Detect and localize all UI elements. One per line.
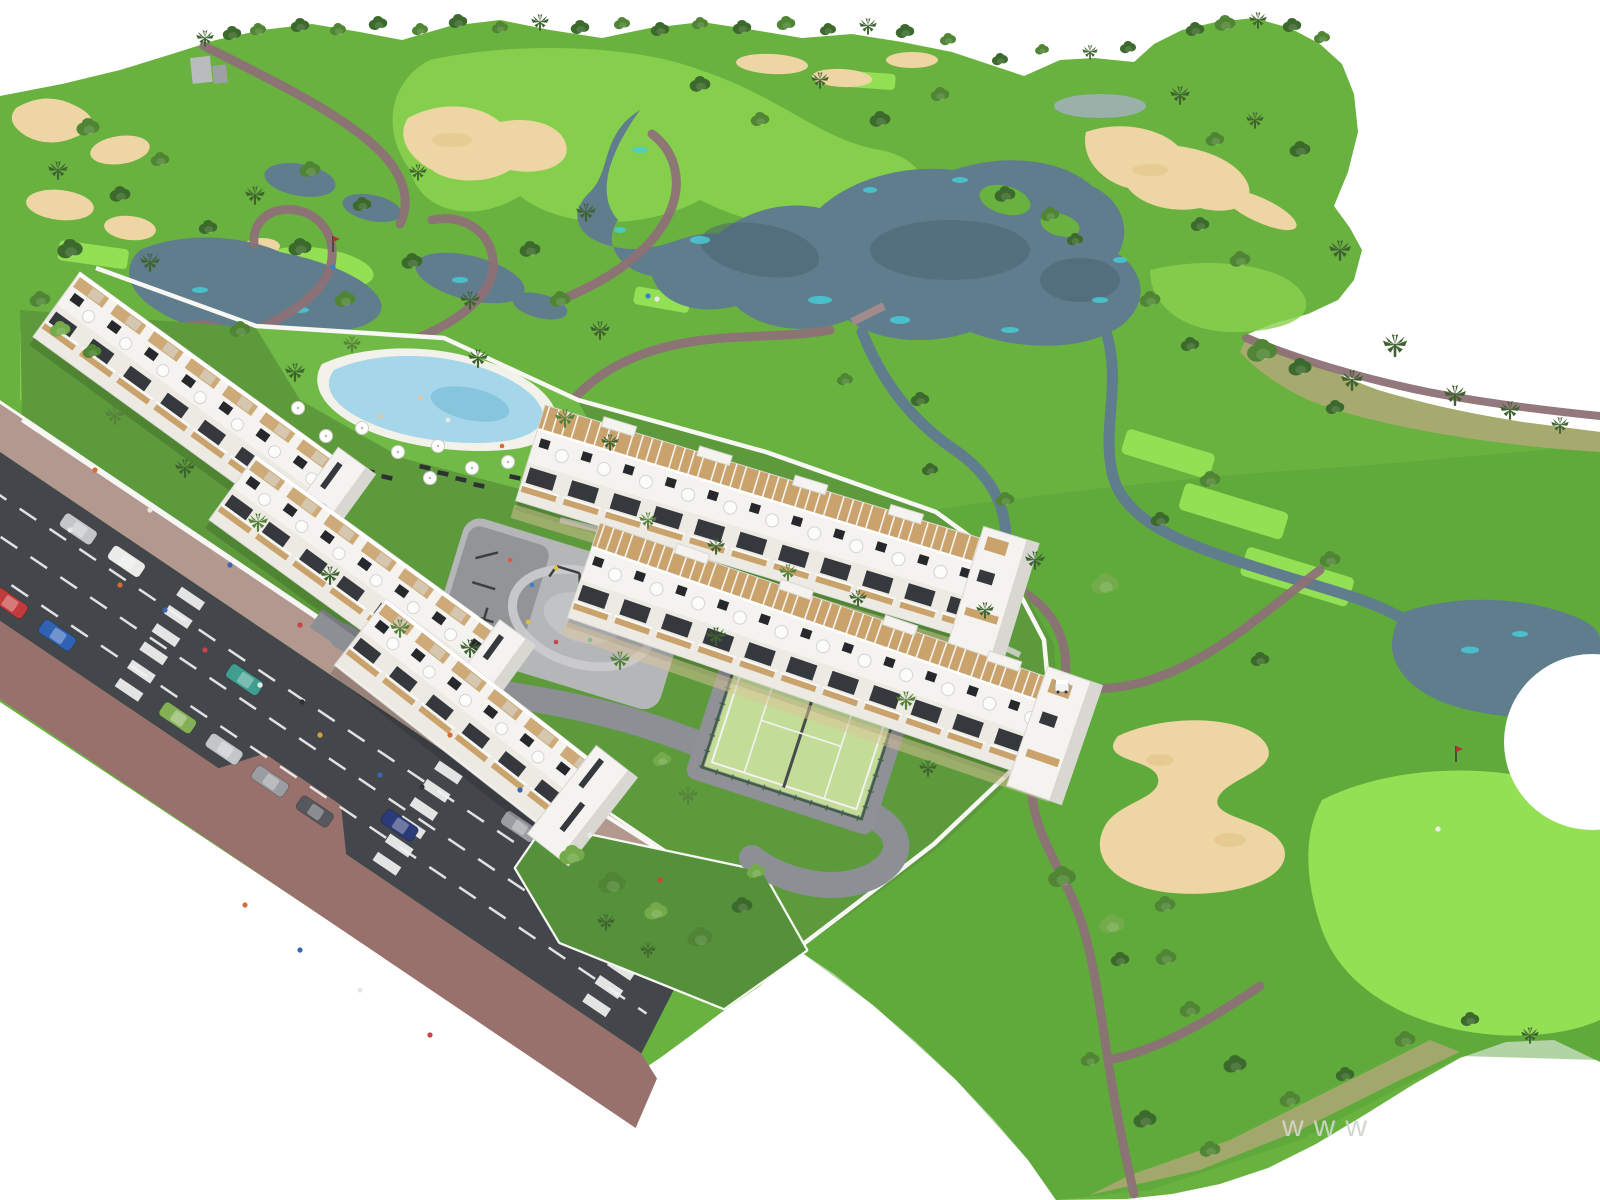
aerial-render: www [0,0,1600,1200]
render-canvas: www [0,0,1600,1200]
watermark-text: www [1281,1110,1377,1143]
